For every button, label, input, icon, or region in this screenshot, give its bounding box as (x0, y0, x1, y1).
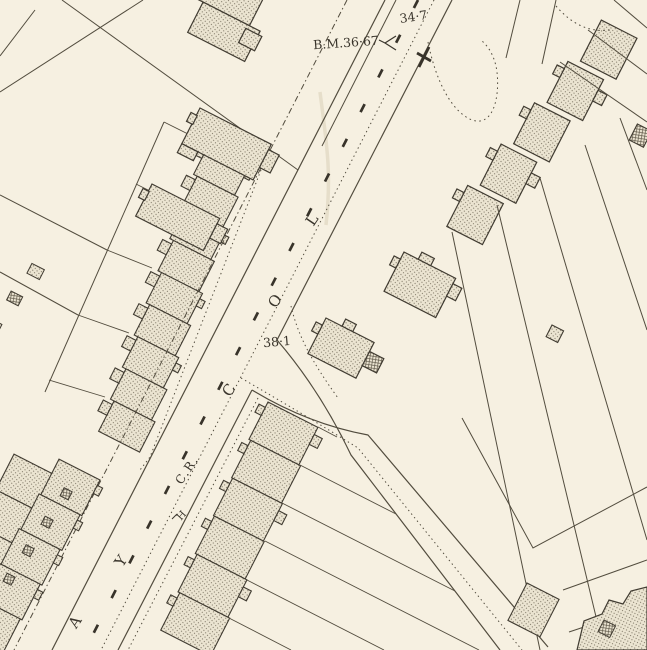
map-image: 34·7 B.M.36·67 38·1 C.R. H L O C Y A (0, 0, 647, 650)
map-canvas: 34·7 B.M.36·67 38·1 C.R. H L O C Y A (0, 0, 647, 650)
spot-height-junction-label: 38·1 (262, 333, 291, 350)
